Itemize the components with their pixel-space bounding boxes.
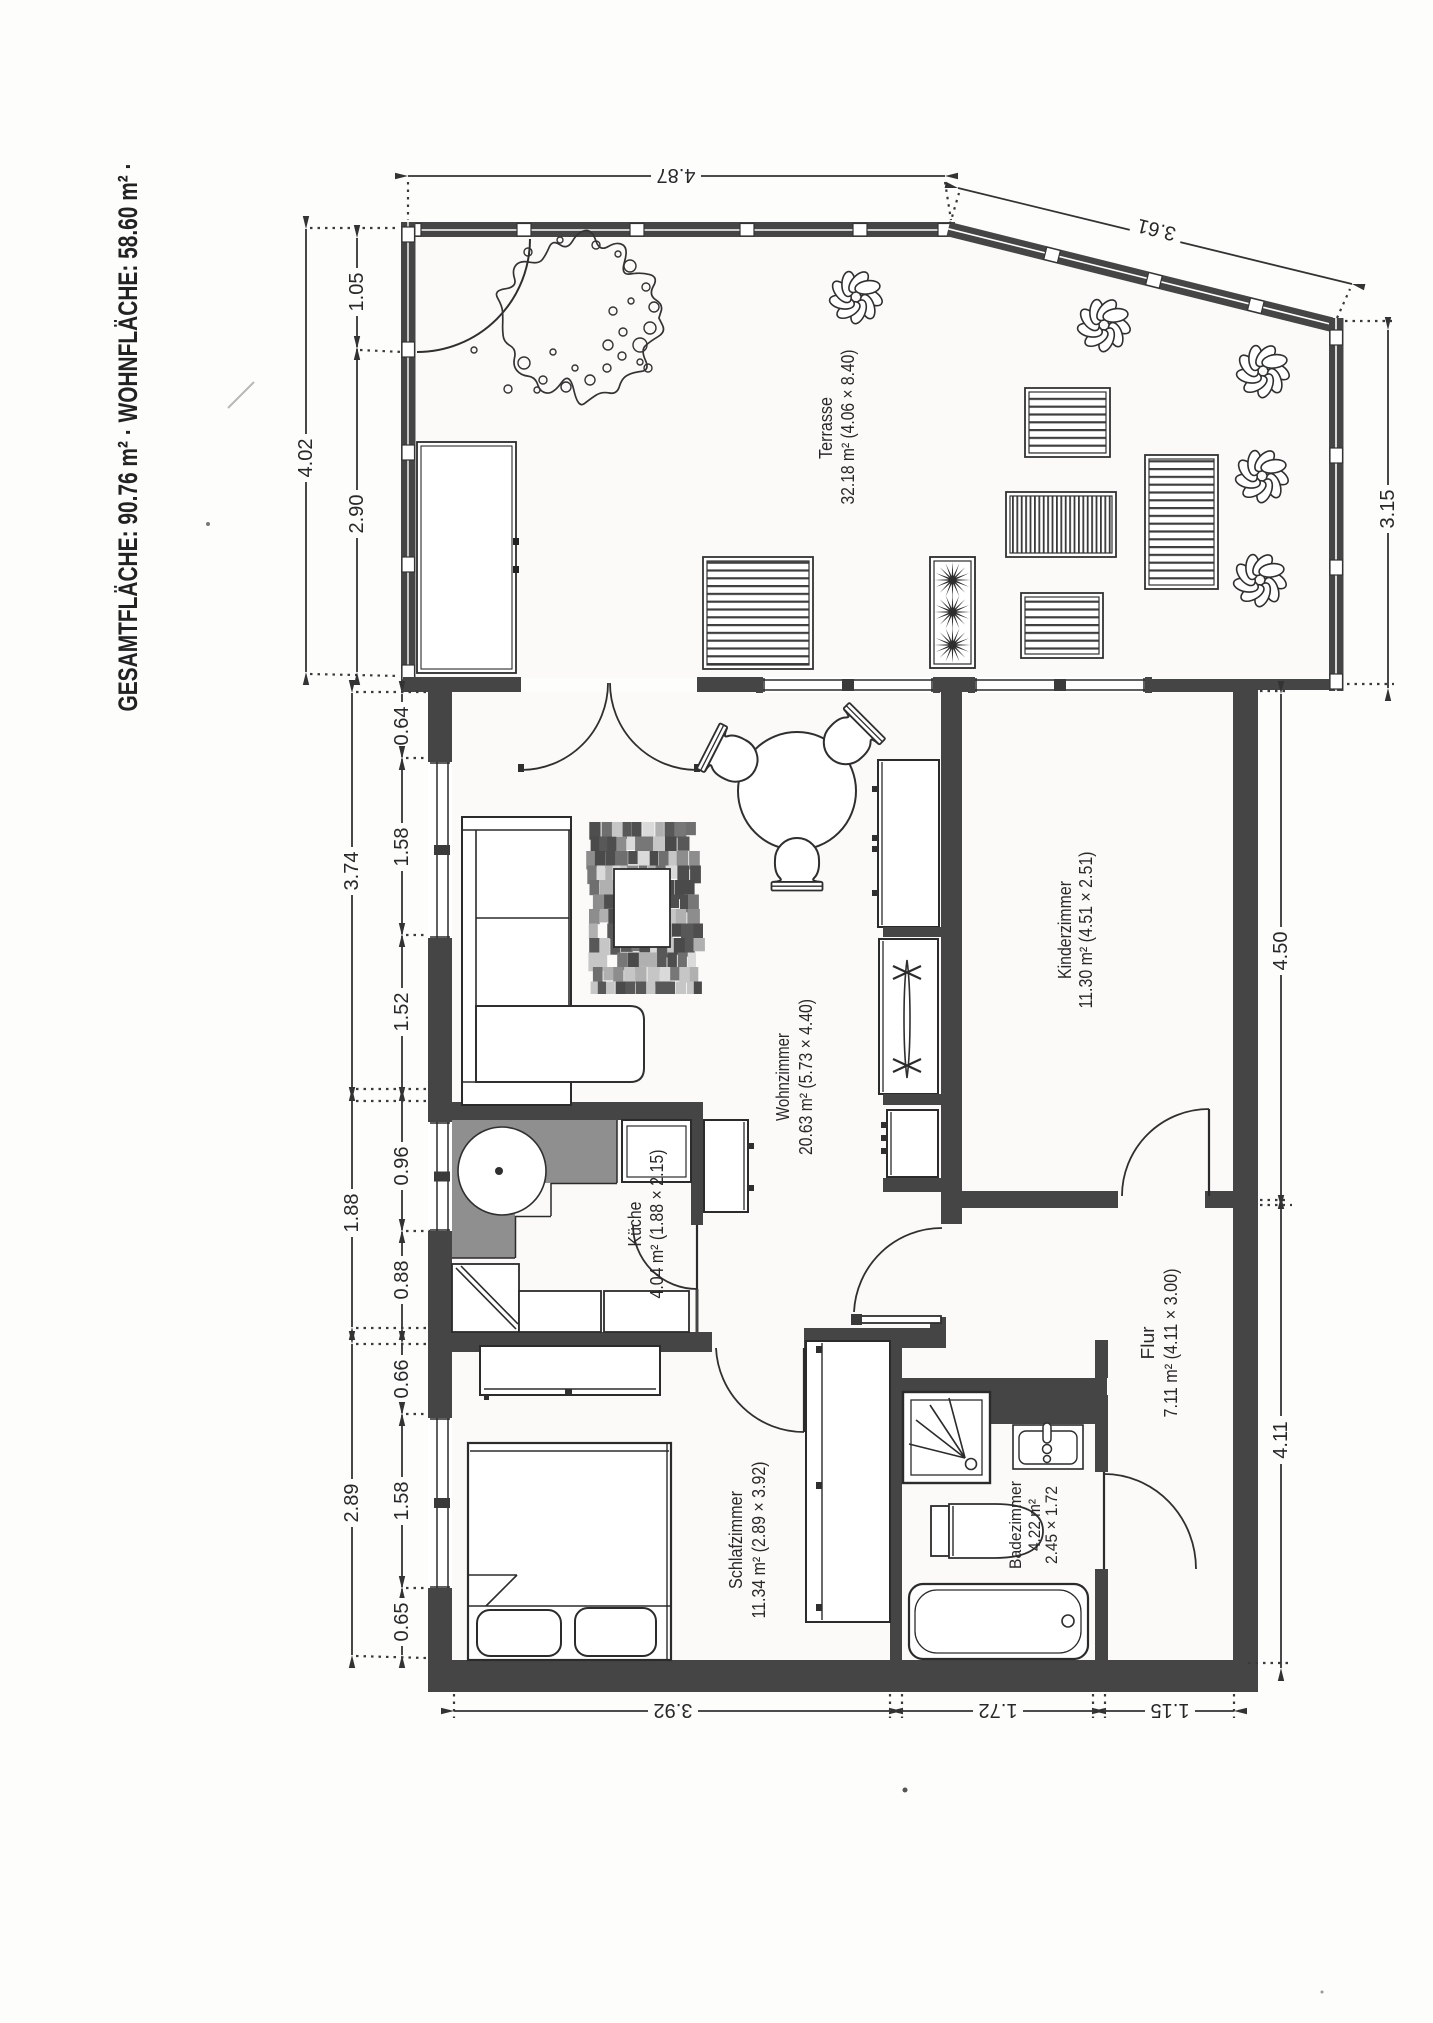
svg-text:Schlafzimmer: Schlafzimmer <box>726 1491 746 1589</box>
svg-text:0.66: 0.66 <box>391 1360 413 1399</box>
svg-text:11.34 m² (2.89 × 3.92): 11.34 m² (2.89 × 3.92) <box>749 1462 769 1619</box>
svg-text:3.15: 3.15 <box>1377 490 1399 529</box>
svg-text:2.89: 2.89 <box>341 1484 363 1523</box>
svg-text:1.05: 1.05 <box>346 273 368 312</box>
svg-text:20.63 m² (5.73 × 4.40): 20.63 m² (5.73 × 4.40) <box>796 999 816 1155</box>
svg-text:2.45 × 1.72: 2.45 × 1.72 <box>1042 1486 1061 1564</box>
svg-text:1.58: 1.58 <box>391 1482 413 1521</box>
svg-text:Flur: Flur <box>1138 1326 1158 1359</box>
svg-text:3.92: 3.92 <box>654 1699 693 1721</box>
svg-text:Kinderzimmer: Kinderzimmer <box>1055 881 1075 979</box>
svg-text:4.02: 4.02 <box>295 439 317 478</box>
svg-text:4.11: 4.11 <box>1270 1421 1292 1458</box>
svg-text:1.15: 1.15 <box>1151 1699 1190 1721</box>
svg-text:GESAMTFLÄCHE: 90.76 m² · WOHNF: GESAMTFLÄCHE: 90.76 m² · WOHNFLÄCHE: 58.… <box>113 163 143 712</box>
svg-text:2.90: 2.90 <box>346 495 368 534</box>
svg-text:0.64: 0.64 <box>391 707 413 746</box>
svg-text:0.88: 0.88 <box>391 1261 413 1300</box>
svg-text:4.87: 4.87 <box>657 164 696 186</box>
svg-text:7.11 m² (4.11 × 3.00): 7.11 m² (4.11 × 3.00) <box>1161 1269 1181 1418</box>
svg-text:32.18 m² (4.06 × 8.40): 32.18 m² (4.06 × 8.40) <box>838 350 858 505</box>
svg-text:3.74: 3.74 <box>341 852 363 891</box>
svg-text:Küche: Küche <box>625 1202 645 1247</box>
svg-text:1.58: 1.58 <box>391 828 413 867</box>
svg-text:0.96: 0.96 <box>391 1147 413 1186</box>
svg-text:11.30 m² (4.51 × 2.51): 11.30 m² (4.51 × 2.51) <box>1076 852 1096 1009</box>
svg-text:1.88: 1.88 <box>341 1194 363 1233</box>
svg-text:4.04 m² (1.88 × 2.15): 4.04 m² (1.88 × 2.15) <box>647 1150 667 1299</box>
svg-text:Terrasse: Terrasse <box>816 397 836 459</box>
svg-text:0.65: 0.65 <box>391 1603 413 1642</box>
svg-text:Badezimmer: Badezimmer <box>1006 1481 1025 1569</box>
svg-text:1.52: 1.52 <box>391 993 413 1032</box>
svg-text:1.72: 1.72 <box>979 1699 1018 1721</box>
svg-text:4.50: 4.50 <box>1270 932 1292 971</box>
svg-text:Wohnzimmer: Wohnzimmer <box>773 1033 793 1121</box>
